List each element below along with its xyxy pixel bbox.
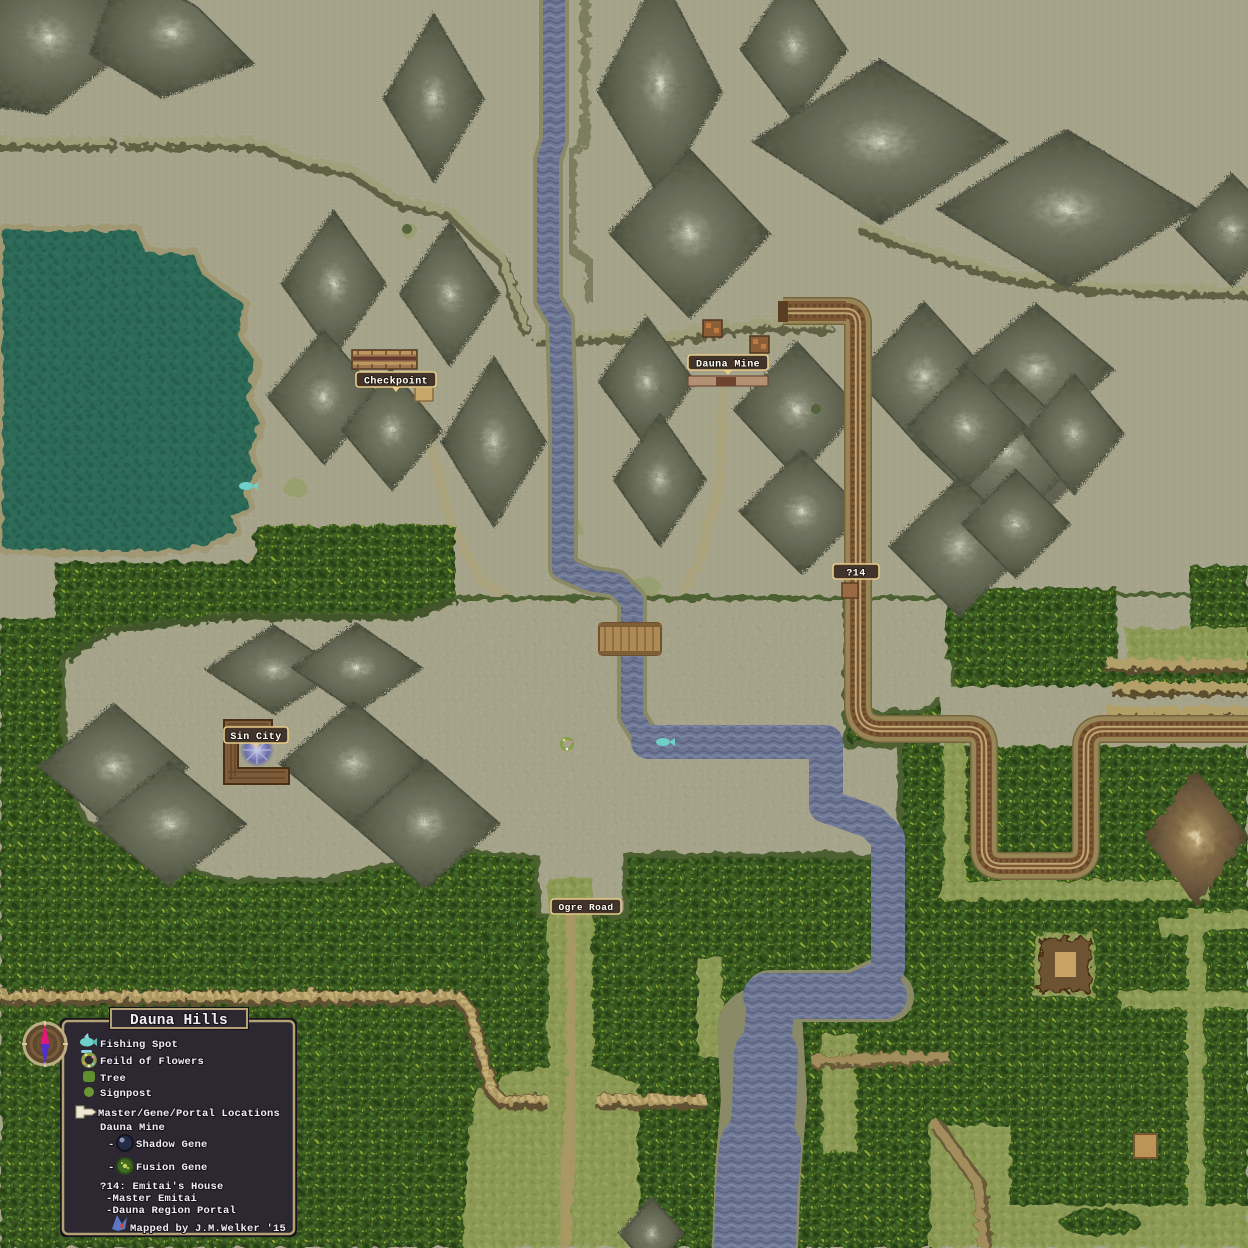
- svg-text:-Master Emitai: -Master Emitai: [106, 1193, 197, 1205]
- svg-text:-: -: [108, 1162, 115, 1174]
- svg-text:Fishing Spot: Fishing Spot: [100, 1039, 178, 1051]
- svg-text:Feild of Flowers: Feild of Flowers: [100, 1056, 204, 1068]
- svg-text:Ogre Road: Ogre Road: [559, 902, 614, 913]
- svg-text:Checkpoint: Checkpoint: [364, 376, 428, 388]
- svg-text:Sin City: Sin City: [230, 731, 281, 743]
- svg-text:Signpost: Signpost: [100, 1088, 152, 1100]
- svg-text:Master/Gene/Portal Locations: Master/Gene/Portal Locations: [98, 1108, 280, 1120]
- svg-text:Mapped by J.M.Welker '15: Mapped by J.M.Welker '15: [130, 1223, 286, 1235]
- svg-text:-: -: [108, 1139, 115, 1151]
- svg-text:-Dauna Region Portal: -Dauna Region Portal: [106, 1205, 236, 1217]
- svg-text:Fusion Gene: Fusion Gene: [136, 1162, 208, 1174]
- svg-text:Dauna Mine: Dauna Mine: [696, 359, 760, 371]
- svg-text:Dauna Hills: Dauna Hills: [130, 1013, 228, 1029]
- svg-text:?14: Emitai's House: ?14: Emitai's House: [100, 1181, 224, 1193]
- svg-text:Dauna Mine: Dauna Mine: [100, 1122, 165, 1134]
- svg-text:Tree: Tree: [100, 1073, 126, 1085]
- svg-text:Shadow Gene: Shadow Gene: [136, 1139, 208, 1151]
- svg-text:?14: ?14: [846, 569, 865, 580]
